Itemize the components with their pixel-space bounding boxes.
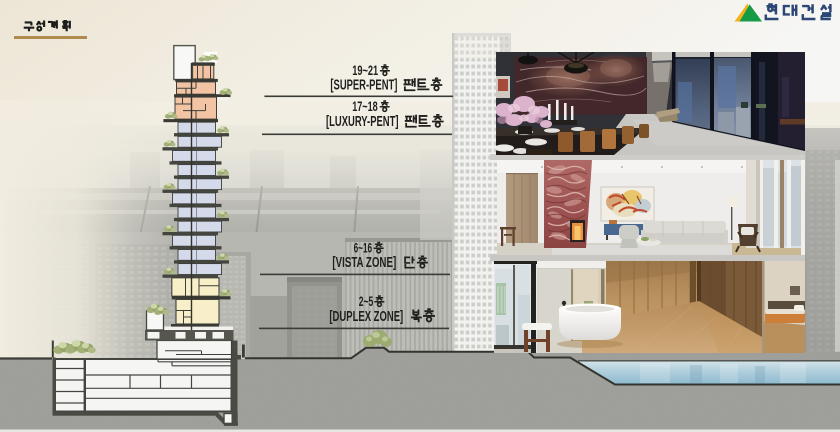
svg-text:19~21: 19~21 xyxy=(352,62,378,78)
svg-text:[DUPLEX ZONE]: [DUPLEX ZONE] xyxy=(329,309,403,325)
svg-text:2~5: 2~5 xyxy=(359,293,374,309)
svg-text:[LUXURY-PENT]: [LUXURY-PENT] xyxy=(326,114,399,130)
svg-text:17~18: 17~18 xyxy=(352,98,378,114)
svg-text:[VISTA ZONE]: [VISTA ZONE] xyxy=(332,255,396,271)
svg-text:6~16: 6~16 xyxy=(354,240,373,256)
svg-text:[SUPER-PENT]: [SUPER-PENT] xyxy=(330,78,397,94)
